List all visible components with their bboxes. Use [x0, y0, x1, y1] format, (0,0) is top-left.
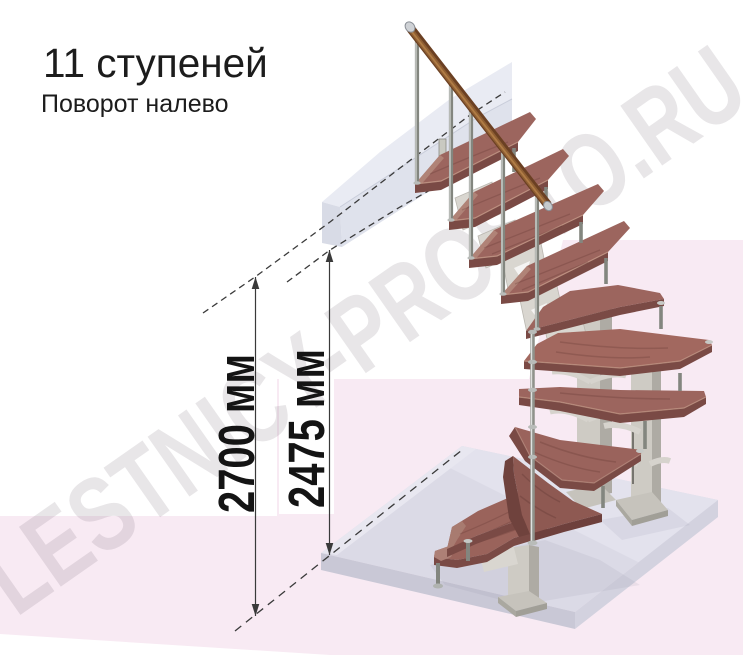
svg-text:11 ступеней: 11 ступеней [43, 40, 268, 86]
svg-text:Поворот налево: Поворот налево [41, 90, 229, 118]
svg-text:2475 мм: 2475 мм [279, 349, 336, 508]
svg-text:2700 мм: 2700 мм [209, 354, 266, 513]
